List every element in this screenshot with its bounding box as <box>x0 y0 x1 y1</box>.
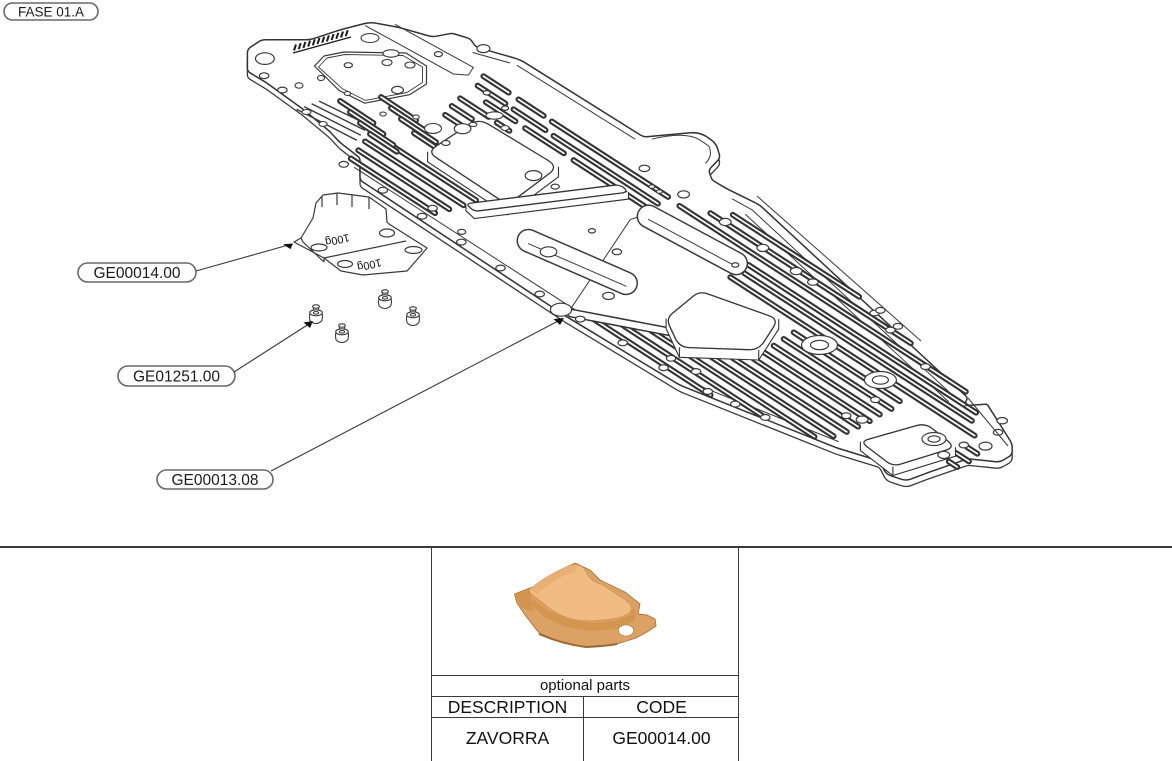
svg-text:GE01251.00: GE01251.00 <box>133 369 220 386</box>
svg-text:GE00013.08: GE00013.08 <box>171 472 258 489</box>
svg-text:FASE 01.A: FASE 01.A <box>18 4 84 19</box>
svg-text:GE00014.00: GE00014.00 <box>93 265 180 282</box>
